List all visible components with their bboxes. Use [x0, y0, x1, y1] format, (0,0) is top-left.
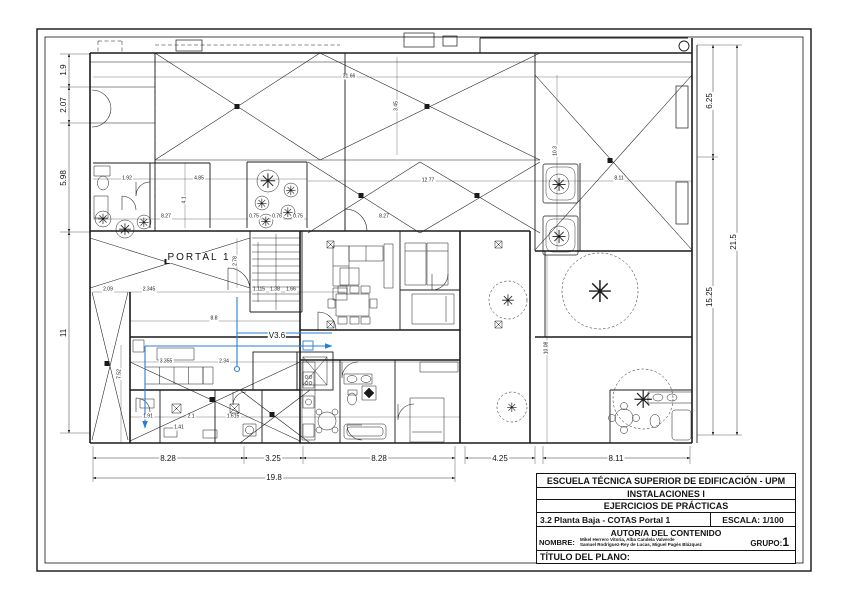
dimension-label: 5.98 — [60, 169, 68, 187]
dimension-label: 0.75 — [292, 215, 304, 220]
dimension-label: 3.45 — [395, 100, 400, 112]
dashed-lines — [98, 41, 340, 230]
dimension-label: 2.07 — [60, 96, 68, 114]
tree-icon: ✳ — [286, 184, 297, 199]
group-field: GRUPO: 1 — [750, 535, 789, 549]
dimension-label: 4.85 — [193, 177, 205, 182]
walls-thick — [90, 38, 692, 443]
dimension-label: 8.11 — [608, 455, 625, 463]
dimension-label: 10.08 — [545, 341, 550, 356]
tree-icon: ✳ — [501, 291, 514, 310]
tree-icon: ✳ — [257, 197, 268, 212]
tree-icon: ✳ — [551, 175, 566, 196]
tree-icon: ✳ — [587, 275, 612, 310]
scale-label: ESCALA: 1/100 — [710, 513, 795, 526]
tree-icon: ✳ — [139, 216, 150, 231]
portal-label: PORTAL 1 — [166, 253, 231, 263]
dimension-label: 11 — [60, 328, 68, 338]
dimension-label: 8.28 — [159, 455, 177, 463]
dimension-label: 1.9 — [60, 63, 68, 76]
authorship-row: AUTOR/A DEL CONTENIDO NOMBRE: Mikel Herr… — [537, 528, 795, 551]
elevator — [253, 352, 333, 390]
tree-icon: ✳ — [633, 386, 653, 414]
dimension-label: 1.615 — [226, 415, 241, 420]
dimension-lines — [60, 45, 742, 482]
dimension-label: 10.3 — [554, 145, 559, 157]
tree-icon: ✳ — [261, 215, 272, 230]
title-block: ESCUELA TÉCNICA SUPERIOR DE EDIFICACIÓN … — [536, 473, 796, 564]
author-names-line2: Samuel Rodríguez-Rey de Lucas, Miguel Pa… — [580, 542, 702, 547]
dimension-label: 8.27 — [160, 215, 172, 220]
dimension-label: 1.38 — [269, 288, 281, 293]
dimension-label: 3.25 — [264, 455, 282, 463]
dimension-label: 2.09 — [102, 288, 114, 293]
tree-icon: ✳ — [97, 212, 109, 228]
tree-icon: ✳ — [118, 220, 131, 239]
dimension-label: 2.1 — [187, 415, 196, 420]
interior-dimension-lines — [93, 57, 692, 443]
sheet-title-row: 3.2 Planta Baja - COTAS Portal 1 ESCALA:… — [537, 513, 795, 527]
dimension-label: 1.41 — [173, 426, 185, 431]
dimension-label: 1.115 — [252, 288, 266, 293]
drawing-sheet: ✳ ✳ ✳ ✳ ✳ ✳ ✳ ✳ ✳ ✳ ✳ ✳ ✳ ✳ — [0, 0, 848, 600]
dimension-label: 12.77 — [421, 179, 436, 184]
dimension-label: 1.92 — [121, 177, 133, 182]
dimension-label: 4.1 — [183, 196, 188, 205]
school-name: ESCUELA TÉCNICA SUPERIOR DE EDIFICACIÓN … — [537, 474, 795, 488]
dimension-label: 7.52 — [118, 368, 123, 380]
dimension-label: 0.76 — [271, 215, 283, 220]
x-bracing — [90, 53, 692, 443]
tree-icon: ✳ — [507, 401, 518, 416]
dimension-label: 8.28 — [370, 455, 388, 463]
dimension-label: 2.78 — [234, 255, 239, 267]
dimension-label: 31.66 — [342, 75, 357, 80]
dimension-label: 0.75 — [248, 215, 260, 220]
dimension-label: 3.355 — [159, 360, 174, 365]
dimension-label: 8.8 — [210, 317, 219, 322]
tree-icon: ✳ — [551, 227, 566, 248]
sheet-title: 3.2 Planta Baja - COTAS Portal 1 — [537, 515, 710, 525]
dimension-label: 19.8 — [265, 474, 283, 482]
dimension-label: 6.25 — [706, 92, 714, 110]
course-name: INSTALACIONES I — [537, 488, 795, 500]
staircase — [252, 234, 300, 310]
column-symbols — [327, 241, 502, 328]
dimension-label: 2.345 — [142, 288, 157, 293]
dimension-label: 15.25 — [706, 286, 714, 308]
plan-title-label: TÍTULO DEL PLANO: — [537, 551, 795, 563]
dimension-label: 8.27 — [378, 215, 390, 220]
dimension-label: 8.11 — [613, 177, 624, 182]
window-label-v36: V3.6 — [268, 332, 286, 340]
walls-thin — [90, 62, 692, 160]
group-value: 1 — [782, 535, 789, 549]
dimension-label: 2.34 — [218, 360, 230, 365]
tree-glyphs: ✳ ✳ ✳ ✳ ✳ ✳ ✳ ✳ ✳ ✳ ✳ ✳ ✳ ✳ — [97, 169, 653, 416]
group-label: GRUPO: — [750, 539, 782, 548]
tree-icon: ✳ — [260, 169, 277, 193]
name-label: NOMBRE: — [539, 538, 575, 547]
author-names: Mikel Herrero Vitoria, Alba Candela Valv… — [580, 537, 702, 547]
dimension-label: 1.66 — [285, 288, 297, 293]
walls-medium — [93, 33, 697, 443]
exercise-name: EJERCICIOS DE PRÁCTICAS — [537, 500, 795, 513]
dimension-label: 4.25 — [491, 455, 509, 463]
dimension-label: 1.91 — [142, 415, 154, 420]
dimension-label: 21.5 — [730, 233, 738, 251]
